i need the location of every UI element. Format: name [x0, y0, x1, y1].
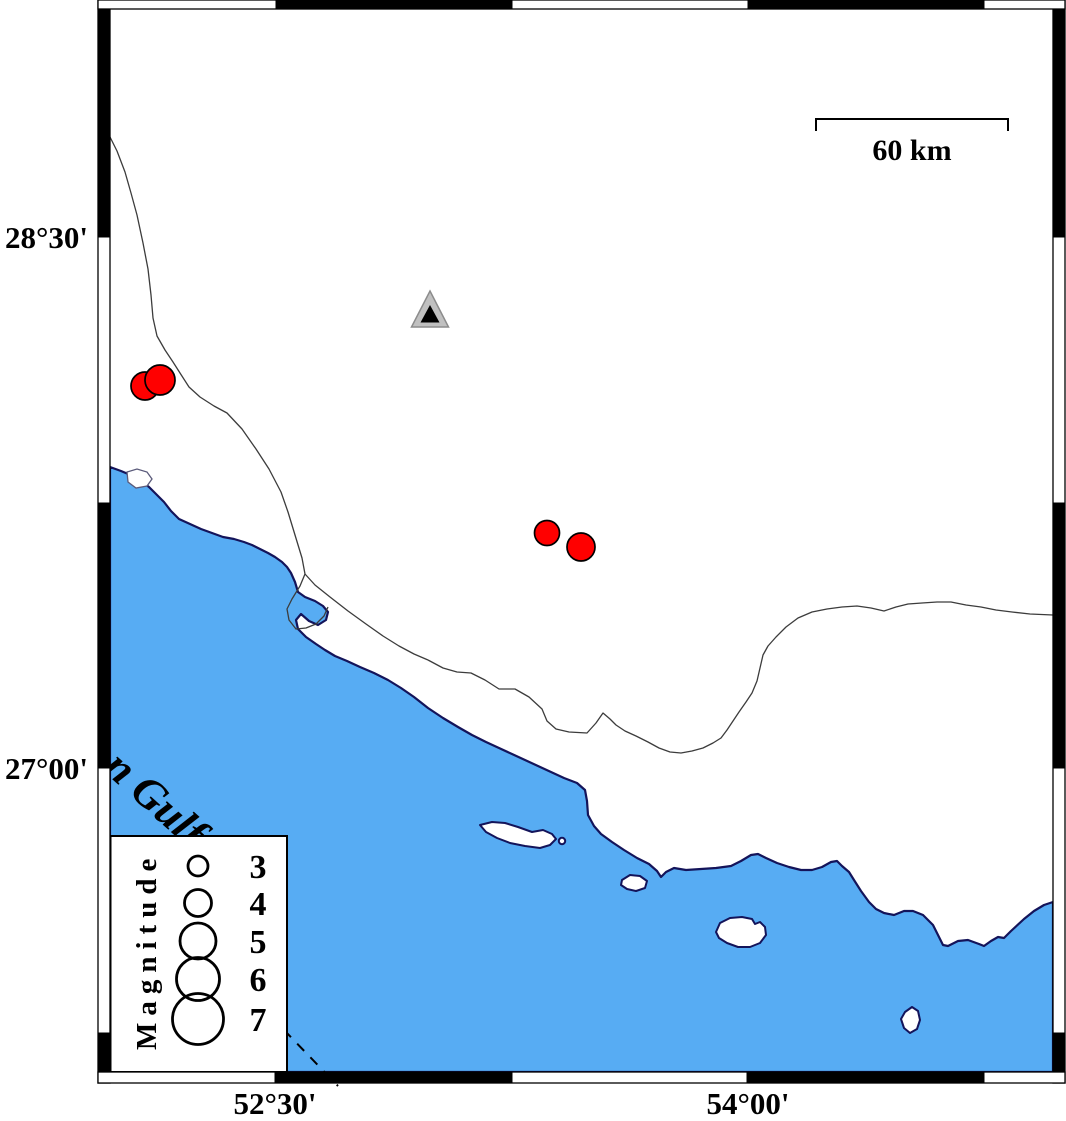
scale-bar-bracket [816, 119, 1008, 131]
scale-bar: 60 km [816, 119, 1008, 167]
frame-seg [98, 1033, 110, 1072]
legend-magnitude-label: 6 [250, 962, 267, 999]
frame-seg [275, 1072, 512, 1083]
inland-line-east [428, 602, 1053, 753]
legend-magnitude-label: 7 [250, 1002, 267, 1039]
earthquake-marker [535, 521, 560, 546]
station-triangle-marker [412, 291, 449, 327]
magnitude-legend: Magnitude 34567 [111, 836, 288, 1072]
lon-label-54-00: 54°00' [706, 1086, 789, 1121]
frame-seg [276, 0, 512, 9]
island-small [621, 875, 647, 891]
frame-seg [1053, 1033, 1065, 1072]
earthquake-marker [145, 365, 175, 395]
islet-dot [559, 838, 565, 844]
legend-title: Magnitude [131, 852, 163, 1050]
frame-seg [1053, 503, 1065, 768]
map-canvas: n Gulf Magnitude 34567 60 km 28°30' [0, 0, 1066, 1121]
earthquake-marker [567, 533, 595, 561]
scale-bar-label: 60 km [872, 134, 951, 167]
lon-label-52-30: 52°30' [233, 1086, 316, 1121]
lat-label-27-00: 27°00' [5, 751, 88, 786]
legend-numbers: 34567 [250, 849, 267, 1039]
frame-seg [748, 0, 984, 9]
legend-magnitude-label: 5 [250, 924, 267, 961]
seismicity-map: n Gulf Magnitude 34567 60 km 28°30' [0, 0, 1066, 1121]
legend-magnitude-label: 4 [250, 886, 267, 923]
legend-magnitude-label: 3 [250, 849, 267, 886]
frame-seg [747, 1072, 984, 1083]
frame-seg [1053, 9, 1065, 237]
lat-label-28-30: 28°30' [5, 220, 88, 255]
frame-seg [98, 503, 110, 768]
frame-seg [98, 9, 110, 237]
